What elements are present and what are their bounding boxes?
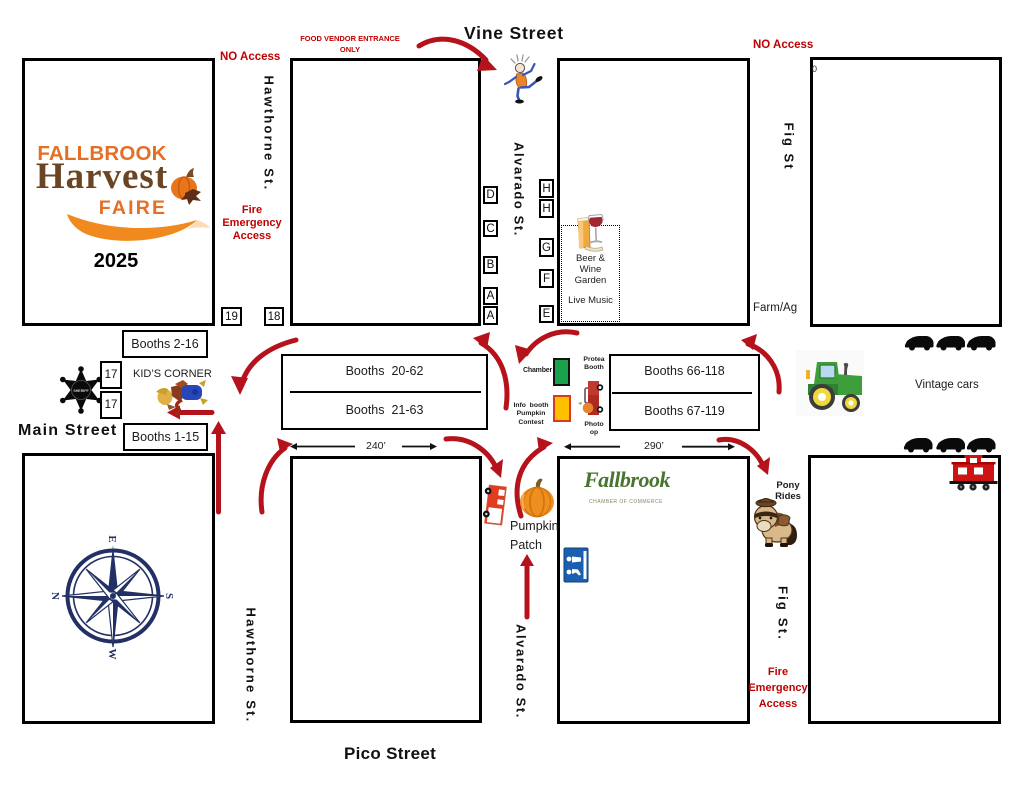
svg-text:N: N xyxy=(49,592,61,600)
svg-text:S: S xyxy=(163,593,175,599)
svg-text:E: E xyxy=(106,535,118,542)
svg-text:W: W xyxy=(106,649,118,660)
svg-text:SHERIFF: SHERIFF xyxy=(73,389,89,393)
